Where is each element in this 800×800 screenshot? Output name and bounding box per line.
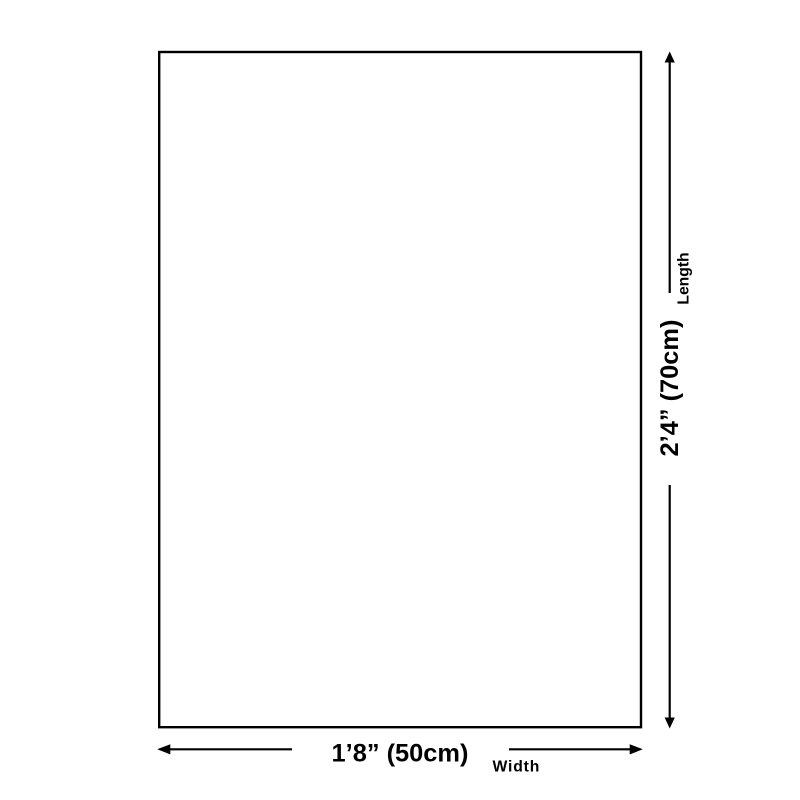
- svg-text:2’4” (70cm): 2’4” (70cm): [656, 320, 684, 457]
- svg-text:1’8” (50cm): 1’8” (50cm): [332, 740, 469, 768]
- svg-text:Width: Width: [493, 759, 541, 776]
- svg-text:Length: Length: [676, 252, 693, 304]
